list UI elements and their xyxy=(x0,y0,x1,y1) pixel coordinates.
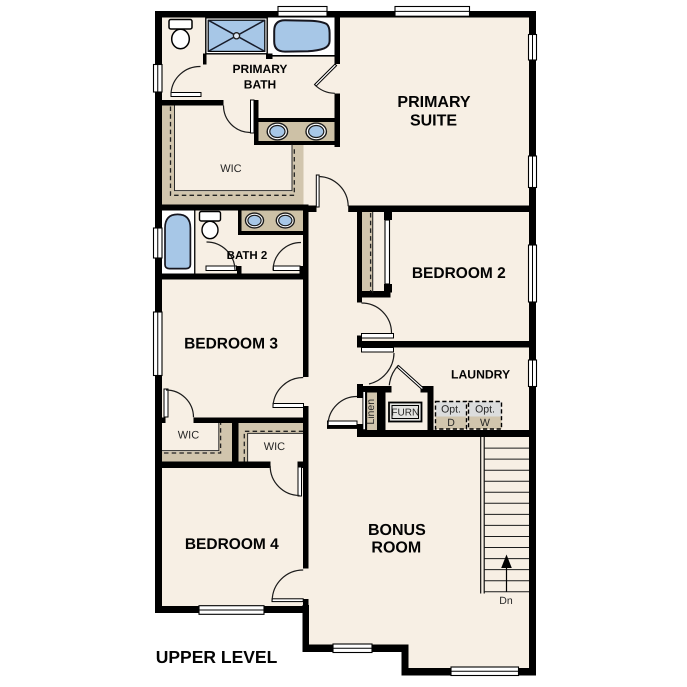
svg-text:FURN: FURN xyxy=(391,408,419,419)
svg-text:LAUNDRY: LAUNDRY xyxy=(451,367,510,381)
svg-text:WIC: WIC xyxy=(178,430,199,442)
svg-text:BONUS: BONUS xyxy=(368,522,426,539)
svg-text:BEDROOM 3: BEDROOM 3 xyxy=(184,336,278,353)
svg-text:Dn: Dn xyxy=(499,595,513,607)
svg-text:BATH 2: BATH 2 xyxy=(227,250,268,262)
svg-text:SUITE: SUITE xyxy=(410,112,457,129)
svg-text:WIC: WIC xyxy=(220,163,241,175)
svg-text:PRIMARY: PRIMARY xyxy=(397,94,471,111)
svg-text:PRIMARY: PRIMARY xyxy=(233,62,288,76)
svg-text:BEDROOM 2: BEDROOM 2 xyxy=(412,265,506,282)
svg-text:WIC: WIC xyxy=(264,441,285,453)
svg-text:BEDROOM 4: BEDROOM 4 xyxy=(185,536,279,553)
svg-text:Opt.: Opt. xyxy=(441,404,461,416)
svg-text:D: D xyxy=(447,417,455,429)
svg-text:W: W xyxy=(480,417,490,429)
svg-text:Opt.: Opt. xyxy=(475,404,495,416)
svg-text:BATH: BATH xyxy=(244,78,276,92)
svg-text:ROOM: ROOM xyxy=(371,539,421,556)
svg-text:Linen: Linen xyxy=(365,399,377,425)
svg-text:UPPER LEVEL: UPPER LEVEL xyxy=(156,647,278,667)
